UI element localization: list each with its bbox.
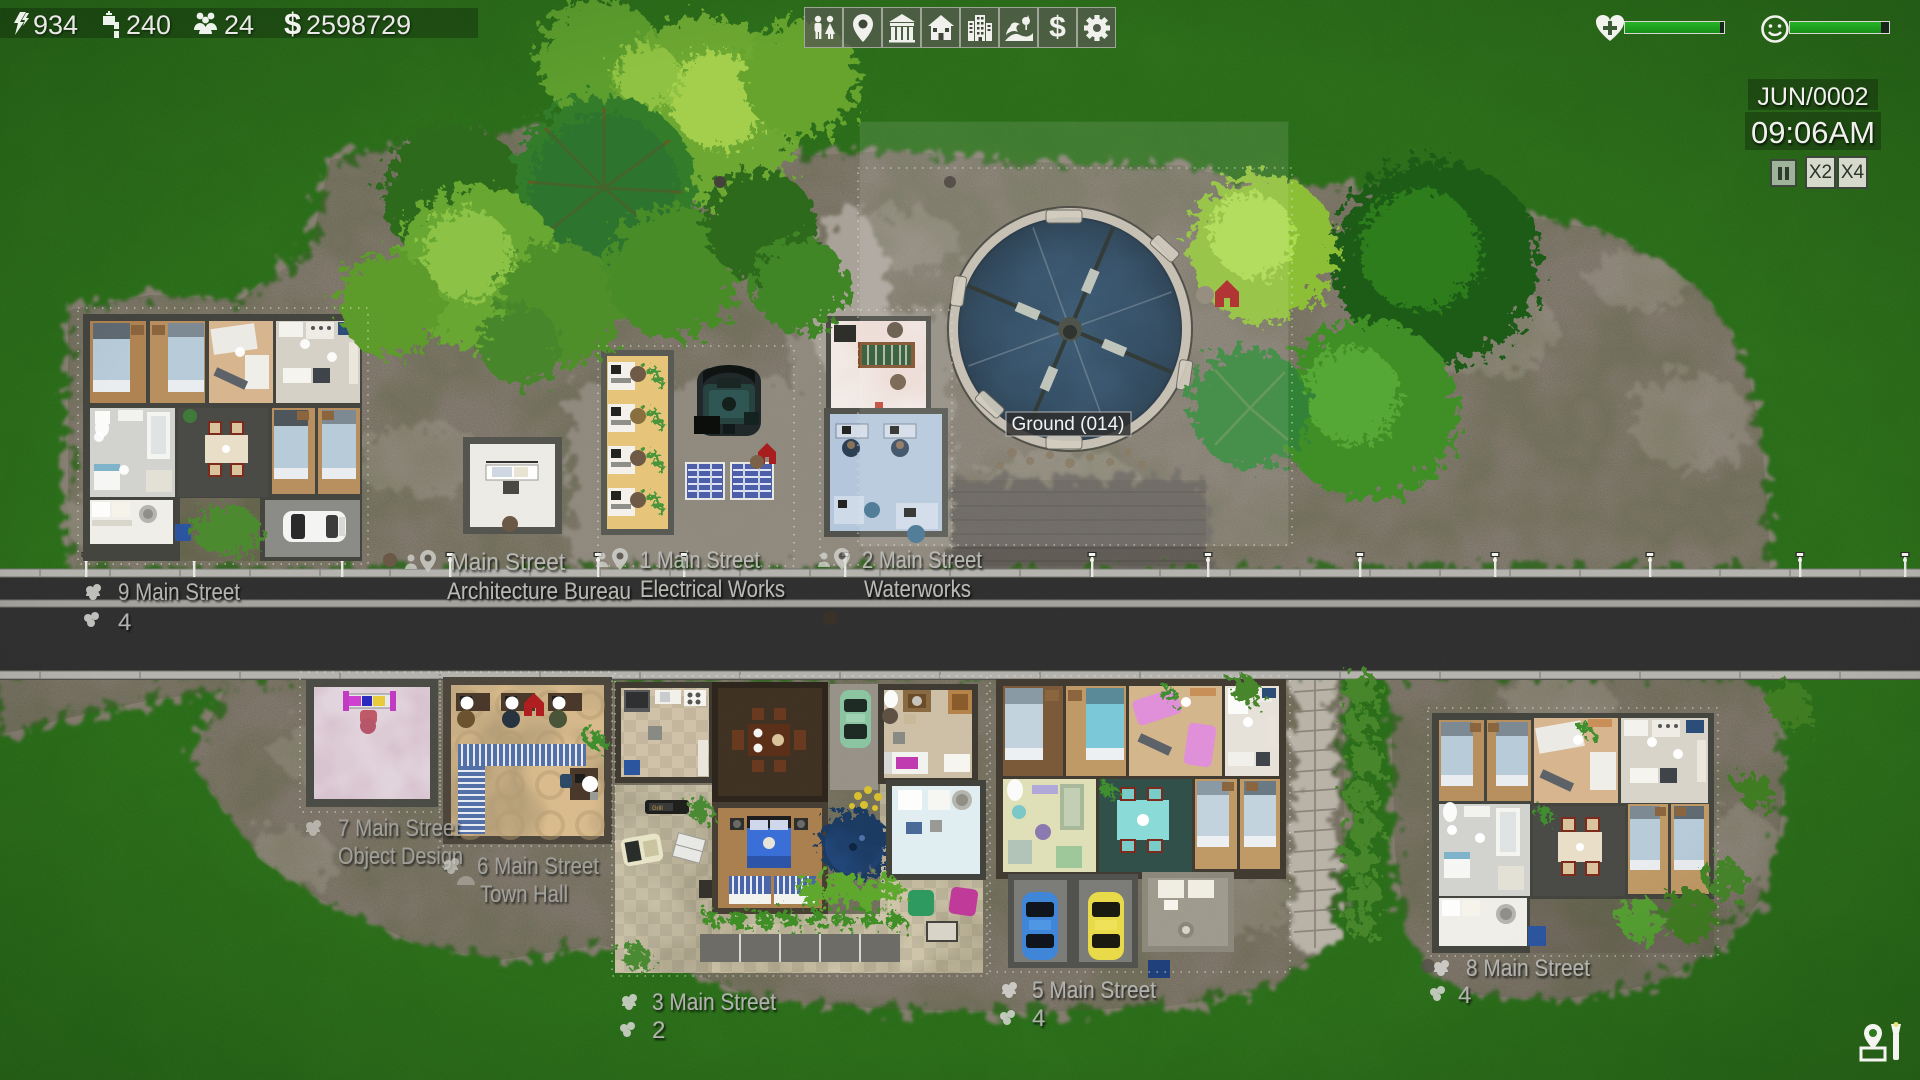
svg-text:Ground (014): Ground (014) [1011, 414, 1124, 435]
svg-text:5 Main Street: 5 Main Street [1032, 977, 1156, 1004]
svg-text:6 Main Street: 6 Main Street [477, 853, 599, 880]
svg-text:4: 4 [1032, 1005, 1045, 1032]
svg-text:2 Main Street: 2 Main Street [862, 547, 982, 574]
svg-text:2: 2 [652, 1017, 665, 1044]
svg-text:Architecture Bureau: Architecture Bureau [447, 578, 631, 605]
svg-text:4: 4 [118, 609, 131, 636]
svg-text:Main Street: Main Street [450, 549, 565, 576]
svg-text:4: 4 [1458, 982, 1471, 1009]
svg-text:1 Main Street: 1 Main Street [640, 547, 760, 574]
svg-text:Town Hall: Town Hall [480, 881, 568, 908]
svg-text:Electrical Works: Electrical Works [640, 576, 785, 603]
svg-text:7 Main Street: 7 Main Street [338, 815, 460, 842]
svg-text:9 Main Street: 9 Main Street [118, 579, 240, 606]
svg-text:3 Main Street: 3 Main Street [652, 989, 776, 1016]
svg-text:Object Design: Object Design [338, 843, 463, 870]
svg-text:8 Main Street: 8 Main Street [1466, 955, 1590, 982]
svg-text:Waterworks: Waterworks [864, 576, 971, 603]
